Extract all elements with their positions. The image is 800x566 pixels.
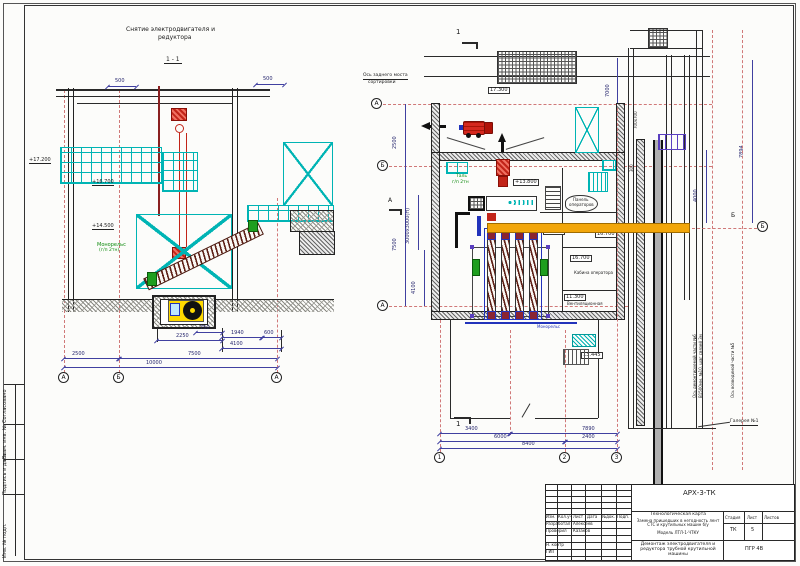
tb-line [723, 511, 724, 561]
screw-cap-bottom [529, 311, 538, 320]
tb-line [545, 535, 631, 536]
auger-support-green2 [248, 220, 258, 232]
wall-stub-left [432, 104, 439, 154]
section-mark-tick [400, 209, 402, 215]
level-16700-b: 16.700 [570, 255, 592, 262]
level-17200: +17.200 [29, 158, 51, 164]
section-mark-tick [469, 417, 471, 424]
note-dismantle-line1: Ось демонтируемой части №6 [692, 334, 697, 398]
axis-bubble-b: Б [113, 372, 124, 383]
level-17300: 17.300 [488, 87, 510, 94]
tb-line [631, 540, 795, 541]
room-wall-right [617, 153, 624, 319]
stair-black [545, 186, 561, 210]
dim-line-2500 [64, 358, 119, 359]
gallery-line [666, 55, 667, 428]
plan-ref-line [510, 330, 511, 435]
tb-doc-code: ПГР 4В [745, 547, 763, 552]
gallery-bottom-line [628, 428, 716, 429]
room-wall-left [432, 153, 439, 319]
coil-dots [508, 200, 534, 205]
dim-2500: 2500 [72, 352, 85, 357]
gallery-top-line [630, 48, 702, 49]
monorail-plan-label: Монорельс [537, 325, 560, 329]
tb-line [762, 511, 763, 540]
section-label: 1 - 1 [164, 57, 182, 64]
hoist-note-line2: г/п 2тн [452, 181, 469, 186]
dim-line-500l [108, 86, 136, 87]
plan-section-mark-bottom: 1 [456, 421, 460, 429]
dim-line-4000 [706, 150, 707, 223]
hoist-trolley [171, 108, 187, 121]
scaffold-grid-mid [162, 152, 198, 192]
frame-corner [470, 314, 474, 318]
yard-boundary-right [598, 319, 599, 418]
section-mark-flag [454, 417, 470, 419]
dim-4000: 4000 [693, 189, 699, 202]
plan-axis-bubble-a: А [371, 98, 382, 109]
ceiling-line [77, 103, 232, 104]
dim-7500: 7500 [188, 352, 201, 357]
frame-corner [546, 314, 550, 318]
partition [540, 212, 617, 213]
tb-stage-header: Стадия [725, 516, 740, 520]
axis-bubble-a2: А [271, 372, 282, 383]
wall-stub-right [617, 104, 624, 154]
dim-line-600 [262, 337, 281, 338]
frame-corner [470, 245, 474, 249]
tb-role-gip: ГИП [546, 550, 554, 554]
dim-3000: 3000х3000(Н) [405, 208, 411, 244]
arrow-left-icon [421, 122, 430, 130]
tb-line [744, 511, 745, 540]
monorail-end-support [658, 134, 686, 150]
black-duct-h [455, 212, 470, 215]
plan-axis-line-3 [617, 108, 618, 452]
room-panel-line2: операторов [569, 203, 594, 207]
note-dismantle-line2: В1500мм, №10, шаг связей 3м [698, 334, 703, 398]
gallery-line [689, 55, 690, 300]
dim-line-7500 [119, 358, 277, 359]
dim-line-7890 [510, 433, 617, 434]
plan-section-mark-side: А [388, 198, 392, 204]
dim-line-6000 [440, 441, 565, 442]
partition [562, 290, 617, 291]
crane-axis-note-line2: сортировки [368, 81, 396, 86]
stair-tower-cyan [575, 107, 599, 153]
dim-line-2250 [157, 340, 222, 341]
monorail-beam [487, 223, 690, 233]
dim-3400: 3400 [465, 427, 478, 432]
screw-4 [529, 240, 538, 312]
dim-6000: 6000 [494, 435, 507, 440]
plan-section-mark-top: 1 [456, 29, 460, 37]
dim-line-2400 [565, 441, 617, 442]
truck-hitch [459, 125, 463, 130]
blue-bar [477, 216, 481, 236]
plan-axis-bubble-3: 3 [611, 452, 622, 463]
frame-corner [546, 245, 550, 249]
gallery-label: Галерея №1 [730, 420, 758, 426]
wall-step-right [300, 232, 334, 254]
room-wall-top [432, 153, 624, 160]
beam-axis-line [692, 228, 757, 229]
dim-8400: 8400 [522, 442, 535, 447]
tb-line [545, 502, 631, 503]
truck-wheel [476, 133, 481, 138]
gallery-line [628, 48, 629, 428]
stair-grey [563, 349, 589, 365]
tb-line [723, 523, 795, 524]
reducer-pulley-hub [190, 308, 195, 313]
truck-wheel [466, 133, 471, 138]
flange-green-right [540, 259, 548, 276]
motor-terminal [170, 303, 180, 316]
level-13800: +13.800 [513, 179, 539, 186]
monorail-note-line2: (г/п 2тн) [99, 249, 119, 254]
dim-4100: 4100 [230, 342, 243, 347]
level-16700: +16.700 [92, 180, 114, 186]
screw-1 [487, 240, 496, 312]
flange-green-left [472, 259, 480, 276]
screw-3 [515, 240, 524, 312]
tb-line [545, 490, 631, 491]
dim-line-10000 [64, 367, 277, 368]
axis-bubble-a: А [58, 372, 69, 383]
drawing-sheet: Согласовано Взам. инв. № Подпись и дата … [0, 0, 800, 566]
ground-left [62, 299, 152, 312]
tb-sheet-value: 5 [751, 528, 754, 533]
tb-stage-value: ТК [730, 528, 737, 533]
tb-line [545, 508, 631, 509]
plan-hoist-block [496, 159, 510, 176]
dim-2400: 2400 [582, 435, 595, 440]
gallery-top-line [630, 30, 702, 31]
dim-500l: 500 [115, 79, 125, 84]
black-duct-v [455, 212, 458, 248]
plan-axis-bubble-a2: А [377, 300, 388, 311]
dim-line-3000 [418, 195, 419, 250]
dim-4100v: 4100 [411, 281, 417, 294]
tb-role-ncontrol: Н. контр [546, 543, 564, 547]
dim-300: 300 [629, 164, 634, 172]
monorail-plan-line [465, 322, 577, 324]
dim-700x700: 700х700 [633, 111, 638, 129]
yard-boundary-left [450, 319, 451, 418]
section-title-line1: Снятие электродвигателя и [126, 27, 215, 33]
dismantle-axis-line [712, 30, 713, 470]
axis-label-b-right: Б [731, 213, 735, 219]
screw-2 [501, 240, 510, 312]
tb-role-checked: Проверил [546, 529, 567, 533]
gallery-dark-band [653, 140, 663, 488]
stamp-divider [15, 384, 16, 556]
window-hatch [602, 160, 616, 171]
gallery-line [671, 55, 672, 428]
dim-7500v: 7500 [392, 238, 398, 251]
tb-line [631, 484, 632, 561]
axis-bubble-b-right: Б [757, 221, 768, 232]
tb-sheet-header: Лист [747, 516, 757, 520]
tb-col-sign: Подп. [617, 515, 629, 519]
dim-7890: 7890 [582, 427, 595, 432]
tb-role-developed: Разработал [546, 522, 570, 526]
dim-500r: 500 [263, 77, 273, 82]
tb-col-kol: Кол.уч [558, 515, 572, 519]
tb-col-date: Дата [587, 515, 597, 519]
tb-col-izm: Изм. [546, 515, 555, 519]
dim-1940: 1940 [231, 331, 244, 336]
tb-col-list: Лист [573, 515, 583, 519]
ledge-right [290, 210, 334, 232]
plan-axis-bubble-1: 1 [434, 452, 445, 463]
dim-line-500r [256, 84, 284, 85]
column-left [68, 88, 74, 312]
stamp-label-signdate: Подпись и дата [2, 454, 8, 495]
stamp-line [4, 384, 24, 385]
gallery-top-block [648, 28, 668, 48]
erect-axis-line [742, 30, 743, 470]
dim-line-1940 [222, 337, 262, 338]
screw-cap-bottom [501, 311, 510, 320]
dim-2500v: 2500 [392, 136, 398, 149]
note-erect: Ось возводимой части №5 [730, 343, 735, 398]
tb-col-doc: №док. [602, 515, 615, 519]
axis-line-a [64, 90, 65, 373]
dim-7000: 7000 [605, 84, 611, 97]
section-mark-tick [476, 42, 478, 49]
equipment-block [468, 196, 485, 211]
tb-line [545, 556, 631, 557]
tb-line [545, 549, 631, 550]
dim-line-8400 [440, 448, 617, 449]
pit-hatch-cyan [572, 334, 596, 347]
gallery-line [684, 55, 685, 300]
window-hatch [446, 162, 468, 174]
screw-cap-bottom [515, 311, 524, 320]
dim-2250: 2250 [176, 334, 189, 339]
dim-line-4100 [222, 348, 281, 349]
dim-line-7894 [752, 60, 753, 223]
tb-drawing-code: АРХ-3-ТК [683, 490, 716, 498]
crane-bridge [497, 51, 577, 84]
stair-cyan [588, 172, 608, 192]
section-mark-flag [462, 42, 476, 44]
scaffold-tower-right [283, 142, 333, 206]
column-right [232, 88, 238, 312]
tb-name-checked: Казаков [573, 529, 590, 533]
ground-right [216, 299, 334, 312]
auger-support-green [147, 272, 157, 286]
plan-hoist-lower [498, 176, 508, 187]
tb-name-developed: Алексеев [573, 522, 593, 526]
dim-750: 750 [200, 326, 210, 331]
stamp-label-inv: Инв. № подл. [2, 524, 8, 559]
stamp-label-agreed: Согласовано [2, 389, 8, 423]
dim-line-750 [196, 332, 222, 333]
plan-axis-bubble-2: 2 [559, 452, 570, 463]
tb-subject: Демонтаж электродвигателя и редуктора тр… [634, 543, 722, 558]
partition [562, 247, 617, 248]
tb-line [545, 496, 631, 497]
truck-cab [484, 122, 493, 134]
tb-sheets-header: Листов [764, 516, 779, 520]
gallery-wall-hatch [637, 140, 644, 425]
red-equipment-box [487, 213, 496, 221]
axis-line-a2 [277, 198, 278, 373]
hoist-hook-icon [175, 124, 184, 133]
dim-line-7000 [617, 58, 618, 103]
dim-line-4100v [424, 250, 425, 306]
crane-axis-note-line1: Ось заднего моста [363, 74, 408, 80]
section-title-line2: редуктора [158, 35, 191, 41]
screw-cap-bottom [487, 311, 496, 320]
yard-bottom-line [535, 418, 598, 419]
level-14500: +14.500 [92, 224, 114, 230]
plan-axis-bubble-b: Б [377, 160, 388, 171]
tb-project-line2: Замена пришедших в негодность лент СТС и… [634, 519, 722, 528]
dim-600: 600 [264, 331, 274, 336]
gallery-line [633, 48, 634, 428]
room-vent-label: Вентиляционная [567, 302, 603, 306]
dim-10000: 10000 [146, 361, 162, 366]
room-operator-label: Кабина оператора [574, 271, 613, 275]
axis-line-b [119, 90, 120, 373]
dim-line-2500v [405, 104, 406, 166]
tb-project-line3: Модель ЛТЛ-1-ЧТКУ [634, 531, 722, 535]
